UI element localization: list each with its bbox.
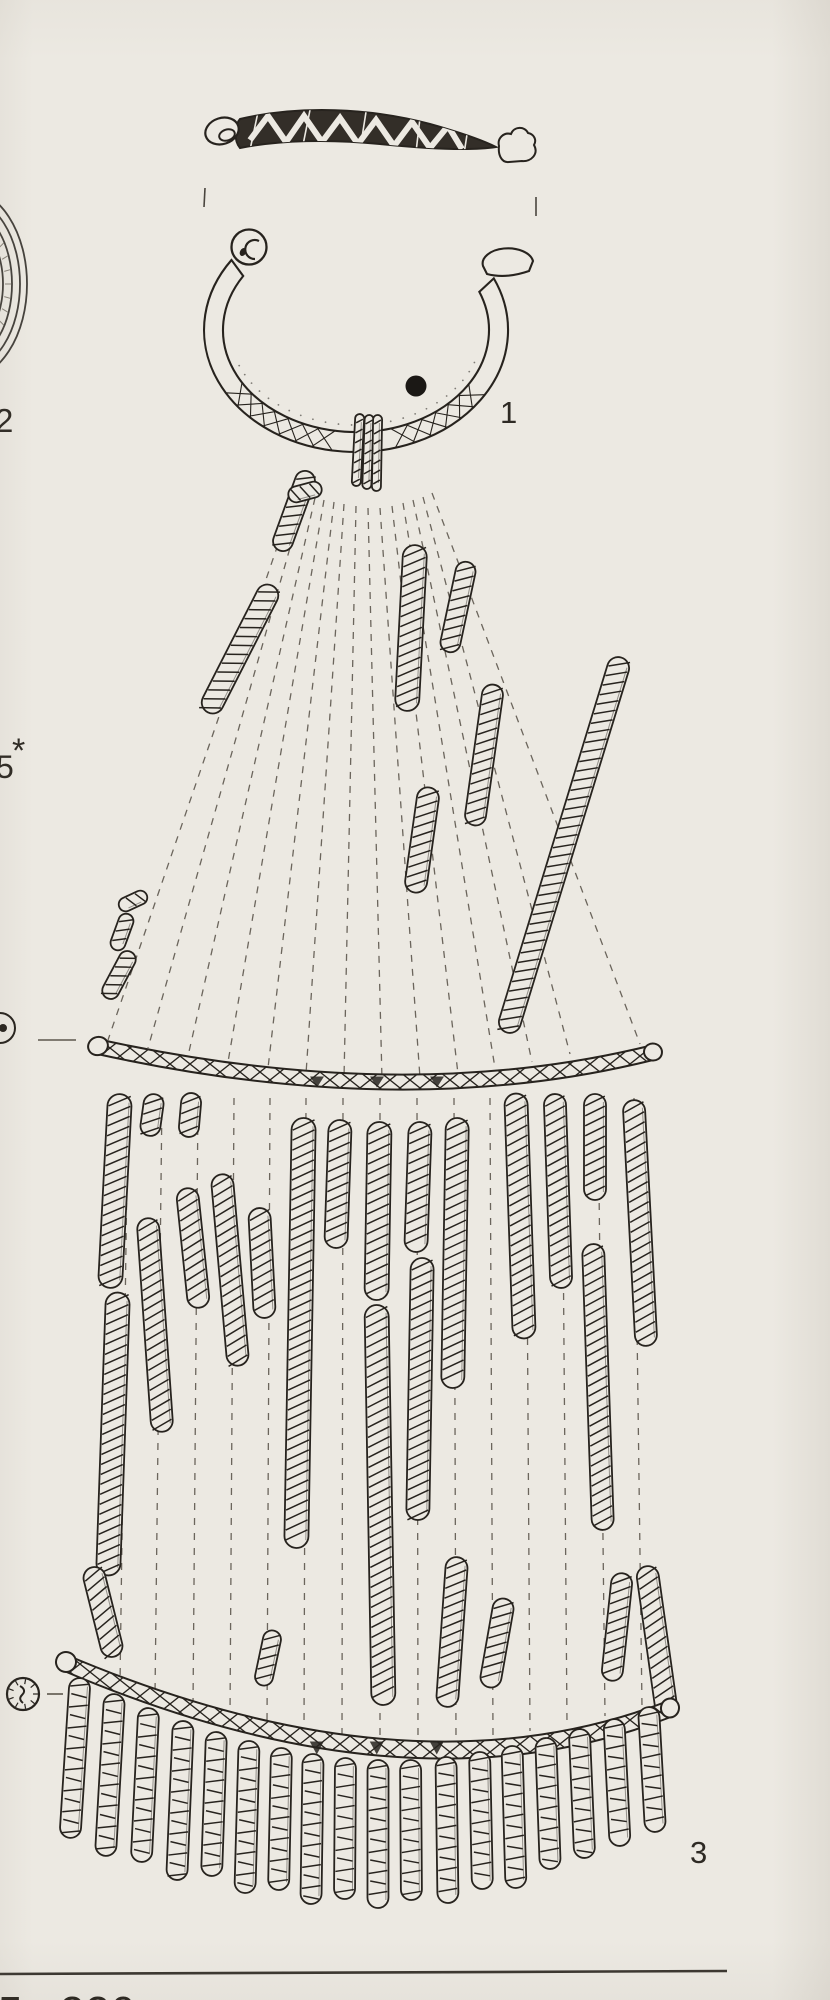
spiral-coil: [479, 1597, 515, 1689]
fringe-column: [334, 1758, 356, 1899]
fringe-column: [300, 1754, 323, 1904]
disc-hatch-line: [0, 320, 4, 325]
stipple-dot: [268, 397, 270, 399]
fan-dashed-line: [344, 506, 356, 1078]
spiral-coil: [395, 544, 428, 711]
fringe-columns: [59, 1677, 666, 1908]
footer-rule: [0, 1971, 727, 1974]
fringe-column: [201, 1732, 227, 1877]
spiral-coil: [582, 1244, 614, 1531]
coil-outline: [166, 1721, 194, 1881]
stipple-dot: [300, 414, 302, 416]
fan-dashed-line: [148, 495, 305, 1048]
mid-coil-beads: [81, 1092, 678, 1719]
stipple-dot: [244, 374, 246, 376]
coil-outline: [441, 1118, 469, 1388]
spiral-coil: [372, 415, 382, 491]
coil-outline: [601, 1572, 633, 1682]
fringe-column: [131, 1708, 160, 1863]
spiral-coil: [324, 1120, 351, 1249]
stipple-dot: [278, 404, 280, 406]
spiral-coil: [287, 480, 324, 504]
stipple-dot: [426, 408, 428, 410]
fringe-column: [435, 1757, 458, 1903]
stipple-dot: [325, 421, 327, 423]
fringe-column: [59, 1677, 90, 1838]
spiral-coil: [436, 1556, 468, 1707]
ring-cap-terminal: [483, 248, 533, 276]
spiral-coil: [270, 468, 318, 554]
spiral-coil: [108, 912, 135, 953]
fringe-column: [367, 1760, 388, 1908]
disc-hatch-line: [4, 297, 10, 299]
stipple-dot: [402, 417, 404, 419]
fan-dashed-line: [306, 504, 344, 1074]
fan-coil-beads: [99, 468, 632, 1036]
spiral-coil: [601, 1572, 633, 1682]
stipple-dot: [351, 424, 353, 426]
spiral-coil: [284, 1118, 316, 1548]
spiral-coil: [464, 683, 505, 827]
coil-outline: [372, 415, 382, 491]
ring-spiral-terminal: [232, 230, 267, 265]
section-rim-tick: [25, 1679, 26, 1684]
section-rim-tick: [25, 1704, 26, 1709]
fringe-column: [638, 1707, 666, 1833]
spiral-coil: [253, 1629, 282, 1688]
spiral-coil: [635, 1565, 678, 1720]
spiral-coil: [365, 1305, 396, 1705]
neckring-front-drawing: [204, 230, 533, 492]
spiral-coil: [248, 1207, 276, 1318]
coil-outline: [131, 1708, 160, 1863]
fringe-column: [166, 1721, 194, 1881]
stipple-dot: [251, 382, 253, 384]
fan-dashed-line: [268, 502, 334, 1068]
profile-knob-terminal: [499, 128, 536, 162]
coil-outline: [178, 1092, 202, 1138]
label-item-3: 3: [690, 1835, 707, 1870]
fringe-column: [95, 1694, 125, 1857]
disc-hatch-line: [2, 256, 8, 259]
registration-tick: [204, 188, 205, 207]
fan-dashed-line: [188, 498, 315, 1056]
fringe-column: [535, 1738, 561, 1870]
coil-outline: [324, 1120, 351, 1249]
ring-hatch-line: [250, 393, 251, 418]
fringe-column: [603, 1719, 630, 1847]
label-item-2: 2: [0, 402, 13, 439]
stipple-dot: [436, 402, 438, 404]
spiral-coil: [544, 1094, 573, 1289]
stipple-dot: [259, 390, 261, 392]
label-item-1: 1: [500, 395, 517, 430]
disc-hatch-line: [0, 243, 4, 248]
spiral-coil: [116, 888, 149, 913]
fringe-column: [234, 1741, 259, 1894]
stipple-dot: [312, 418, 314, 420]
coil-outline: [234, 1741, 259, 1894]
spacer-bar-1-drawing: [86, 1034, 664, 1089]
stipple-dot: [446, 395, 448, 397]
disc-arc: [0, 189, 27, 379]
bar1-section-icon: [0, 1013, 76, 1043]
stipple-dot: [454, 388, 456, 390]
disc-hatch-line: [4, 270, 10, 272]
spiral-coil: [439, 560, 478, 654]
fringe-column: [268, 1748, 292, 1890]
spiral-coil: [404, 1122, 432, 1253]
coil-outline: [439, 560, 478, 654]
fan-dashed-line: [423, 497, 570, 1054]
stipple-dot: [338, 423, 340, 425]
stipple-dot: [288, 410, 290, 412]
fan-dashed-line: [368, 508, 382, 1080]
stipple-dot: [238, 365, 240, 367]
spiral-coil: [178, 1092, 202, 1138]
spiral-coil: [404, 786, 441, 894]
coil-shade-line: [517, 668, 627, 1028]
spiral-coil: [364, 1122, 391, 1300]
spiral-coil: [81, 1565, 125, 1660]
registration-marks: [204, 188, 536, 216]
fan-dashed-line: [228, 500, 324, 1062]
coil-outline: [395, 544, 428, 711]
page-caption: 5. 220: [0, 1988, 136, 2000]
disc-hatch-line: [2, 309, 8, 312]
footer-rule-line: [0, 1971, 727, 1974]
stipple-dot: [462, 379, 464, 381]
spiral-coil: [98, 1094, 132, 1289]
neckring-profile-drawing: [202, 110, 536, 162]
spiral-coil: [441, 1118, 469, 1388]
stipple-dot: [468, 371, 470, 373]
spiral-coil: [99, 948, 138, 1002]
spiral-coil: [137, 1217, 174, 1432]
stipple-dot: [390, 420, 392, 422]
ring-wire-wrap: [352, 414, 383, 491]
spiral-coil: [406, 1258, 434, 1520]
spiral-coil: [504, 1093, 536, 1339]
coil-outline: [436, 1556, 468, 1707]
coil-outline: [108, 912, 135, 953]
disc-fragment-drawing: [0, 189, 27, 379]
bar2-section-icon: [7, 1678, 63, 1710]
fan-lines: [108, 492, 640, 1080]
spiral-coil: [176, 1187, 210, 1309]
spiral-coil: [198, 581, 282, 718]
fringe-column: [502, 1746, 527, 1889]
coil-outline: [367, 1760, 388, 1908]
coil-outline: [270, 468, 318, 554]
spiral-coil: [496, 654, 632, 1035]
find-spot-dot: [406, 376, 427, 397]
spiral-coil: [623, 1100, 658, 1347]
coil-outline: [603, 1719, 630, 1847]
label-grave-asterisk: *: [12, 732, 25, 770]
stipple-dot: [474, 362, 476, 364]
fringe-column: [569, 1729, 595, 1859]
spiral-coil: [96, 1292, 130, 1576]
figure-plate: 1 2 3 5 * 5. 220: [0, 0, 830, 2000]
stipple-dot: [414, 413, 416, 415]
coil-outline: [211, 1173, 250, 1366]
fringe-column: [400, 1760, 422, 1900]
fringe-column: [469, 1752, 493, 1889]
coil-outline: [365, 1305, 396, 1705]
spiral-coil: [211, 1173, 250, 1366]
coil-outline: [479, 1597, 515, 1689]
spiral-coil: [584, 1094, 606, 1200]
